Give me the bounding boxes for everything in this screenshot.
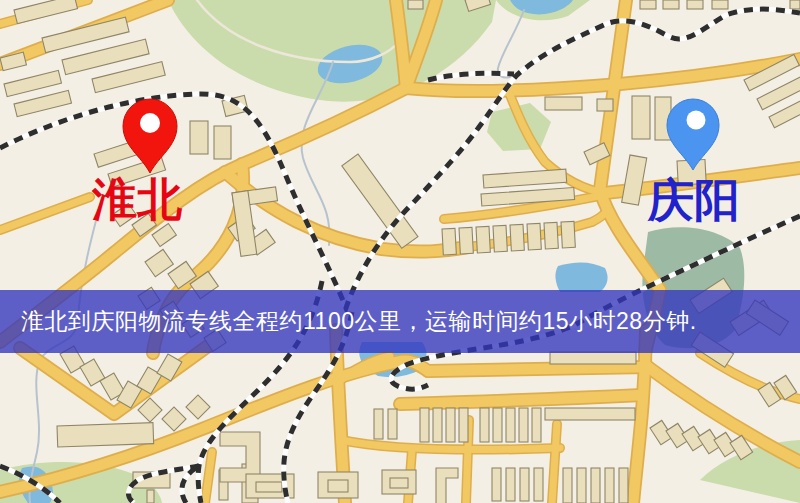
destination-city-label: 庆阳 <box>648 177 740 223</box>
origin-city-label: 淮北 <box>92 177 182 222</box>
map-canvas <box>0 0 800 503</box>
route-info-banner: 淮北到庆阳物流专线全程约1100公里，运输时间约15小时28分钟. <box>0 290 800 353</box>
origin-pin-icon <box>123 99 177 173</box>
route-info-text: 淮北到庆阳物流专线全程约1100公里，运输时间约15小时28分钟. <box>21 306 697 337</box>
map-image: 淮北 庆阳 淮北到庆阳物流专线全程约1100公里，运输时间约15小时28分钟. <box>0 0 800 503</box>
destination-pin-icon <box>667 99 719 170</box>
